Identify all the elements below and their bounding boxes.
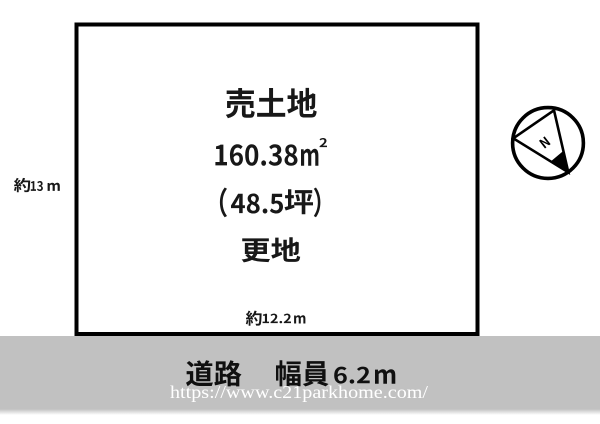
- svg-text:https://www.c21parkhome.com/: https://www.c21parkhome.com/: [170, 382, 428, 402]
